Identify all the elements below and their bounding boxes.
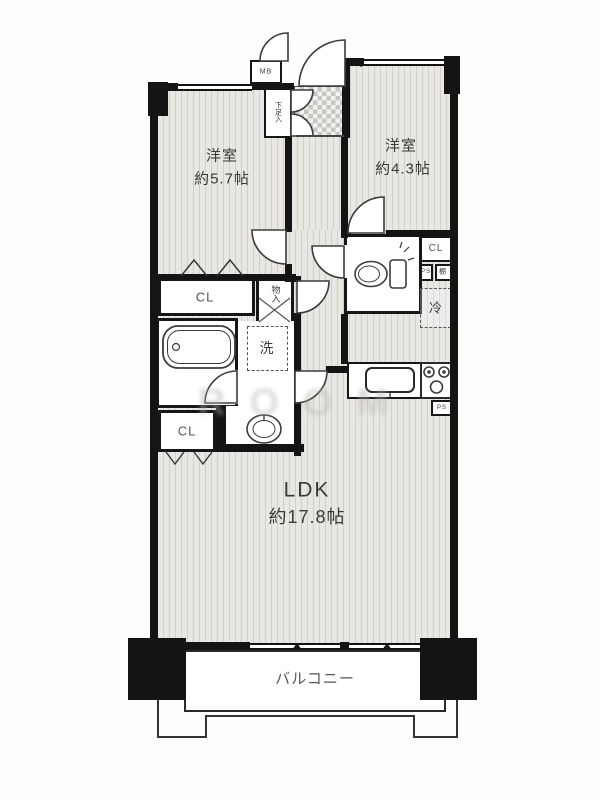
door-arc-entrance	[299, 40, 345, 86]
refrigerator-label: 冷	[429, 302, 443, 315]
slider-tick-marks	[292, 643, 392, 650]
bedroom1-name: 洋室	[206, 149, 238, 164]
bathtub-icon	[163, 326, 235, 368]
ldk-size: 約17.8帖	[268, 508, 345, 526]
door-arc-toilet	[312, 246, 344, 278]
bedroom2-name: 洋室	[385, 139, 417, 154]
door-arc-shoe-cabinet-bottom	[291, 114, 313, 136]
window-arrow	[352, 59, 362, 67]
closet-hall-label: CL	[429, 244, 444, 254]
meter-box-label: MB	[260, 69, 273, 76]
storage-label: 物入	[271, 285, 280, 303]
balcony-label: バルコニー	[275, 672, 355, 687]
balcony-edge	[158, 700, 457, 737]
floor-plan: 洋室 約5.7帖 洋室 約4.3帖 LDK 約17.8帖 バルコニー CL CL…	[0, 0, 600, 800]
toilet-icon	[355, 242, 414, 288]
door-arc-shoe-cabinet-top	[291, 90, 313, 112]
bedroom1-size: 約5.7帖	[194, 172, 250, 187]
door-arc-bedroom2	[348, 197, 384, 233]
ldk-name: LDK	[284, 480, 331, 501]
pipe-space-hall-label: PS	[421, 269, 431, 275]
door-arc-meter-box	[260, 33, 288, 61]
washer-label: 洗	[260, 341, 275, 355]
watermark: ROOM	[150, 382, 460, 432]
shelf-label: 棚	[439, 269, 447, 276]
closet-bedroom1-label: CL	[196, 291, 215, 304]
door-arc-bedroom1	[252, 230, 286, 264]
shoe-cabinet-label: 下足入	[275, 102, 282, 123]
bedroom2-size: 約4.3帖	[375, 162, 431, 177]
door-arc-washroom	[297, 281, 329, 313]
